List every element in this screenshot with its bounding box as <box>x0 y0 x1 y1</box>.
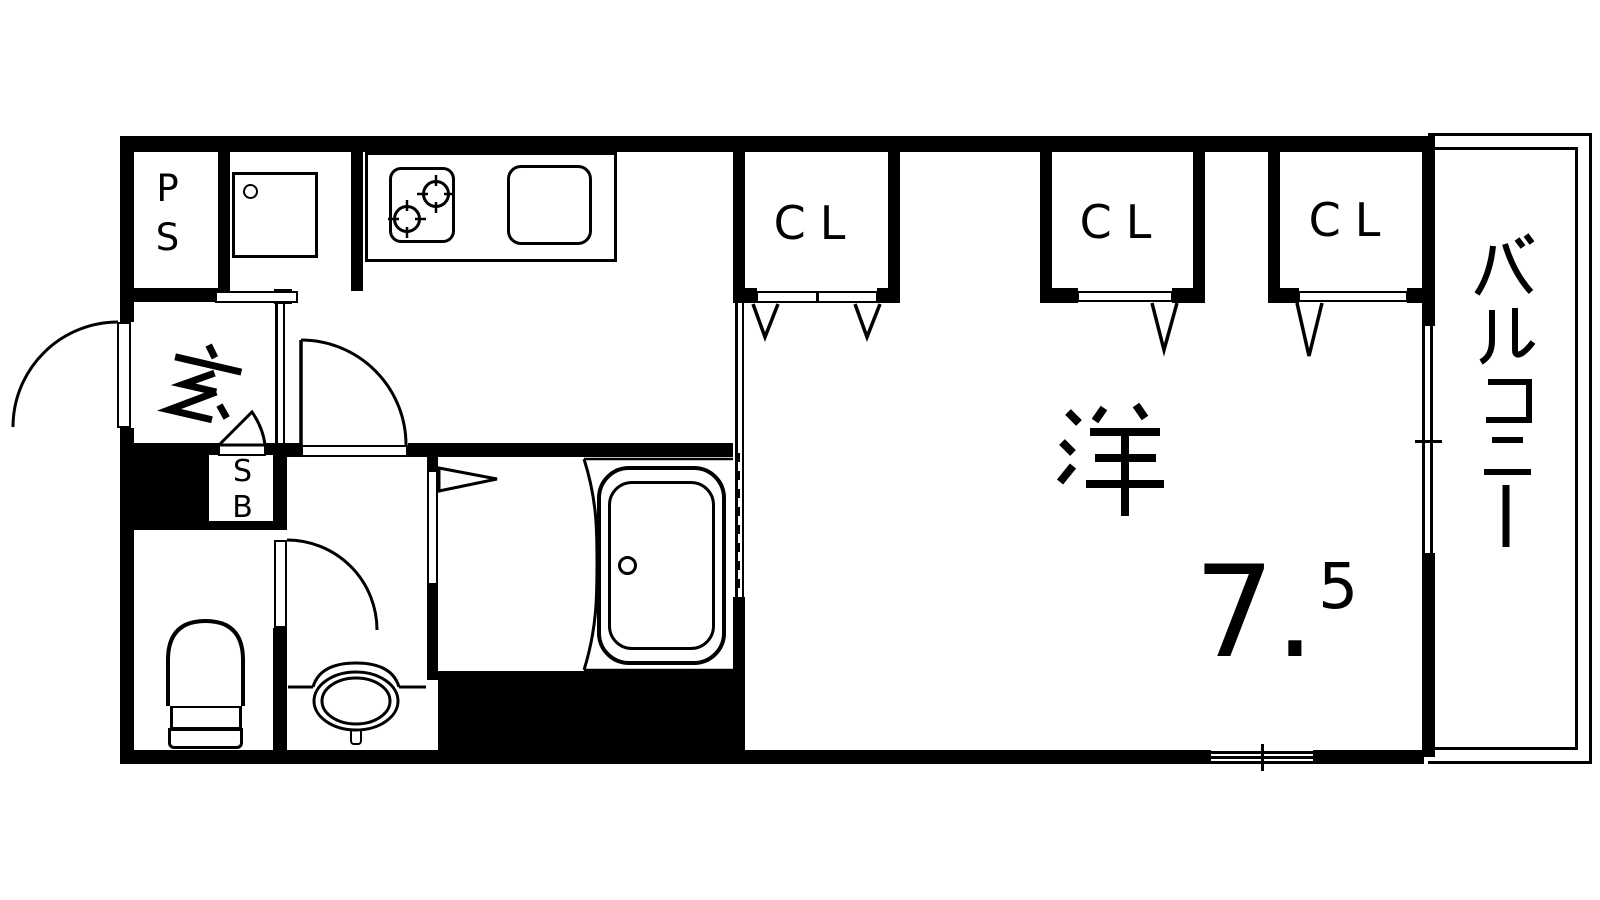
room-size-label: 7. 5 <box>1194 549 1358 676</box>
balcony-kana-ni <box>1479 431 1535 479</box>
toilet-bowl-icon <box>168 621 243 706</box>
floor-plan: PS SB CL CL CL 7. 5 <box>0 0 1600 900</box>
balcony-kana-ko <box>1481 374 1535 428</box>
toilet-door-arc <box>287 540 377 630</box>
shoe-box-label: SB <box>225 454 260 526</box>
burner-ticks <box>388 175 455 238</box>
cl1-fold-mark-2 <box>855 304 880 337</box>
closet-2-label: CL <box>1052 195 1193 249</box>
balcony-kana-ba <box>1474 234 1536 300</box>
bath-unit-left-curve <box>584 459 597 670</box>
bathroom-door-pennant <box>439 468 497 491</box>
room-size-sup: 5 <box>1318 555 1358 618</box>
closet-3-label: CL <box>1280 193 1423 247</box>
closet-1-label: CL <box>745 196 888 250</box>
cl2-fold-mark <box>1152 303 1177 350</box>
washroom-door-arc <box>301 340 406 445</box>
room-size-main: 7. <box>1194 549 1315 676</box>
cl3-fold-mark <box>1297 303 1322 356</box>
wash-basin-icon <box>288 663 426 730</box>
front-door-arc <box>13 322 118 427</box>
cl1-fold-mark-1 <box>753 304 778 337</box>
room-kanji-label <box>1054 402 1166 520</box>
balcony-kana-ru <box>1477 302 1535 364</box>
balcony-kana-chouon <box>1476 480 1536 552</box>
pipe-space-label: PS <box>146 167 189 265</box>
plan-linework <box>0 0 1600 900</box>
